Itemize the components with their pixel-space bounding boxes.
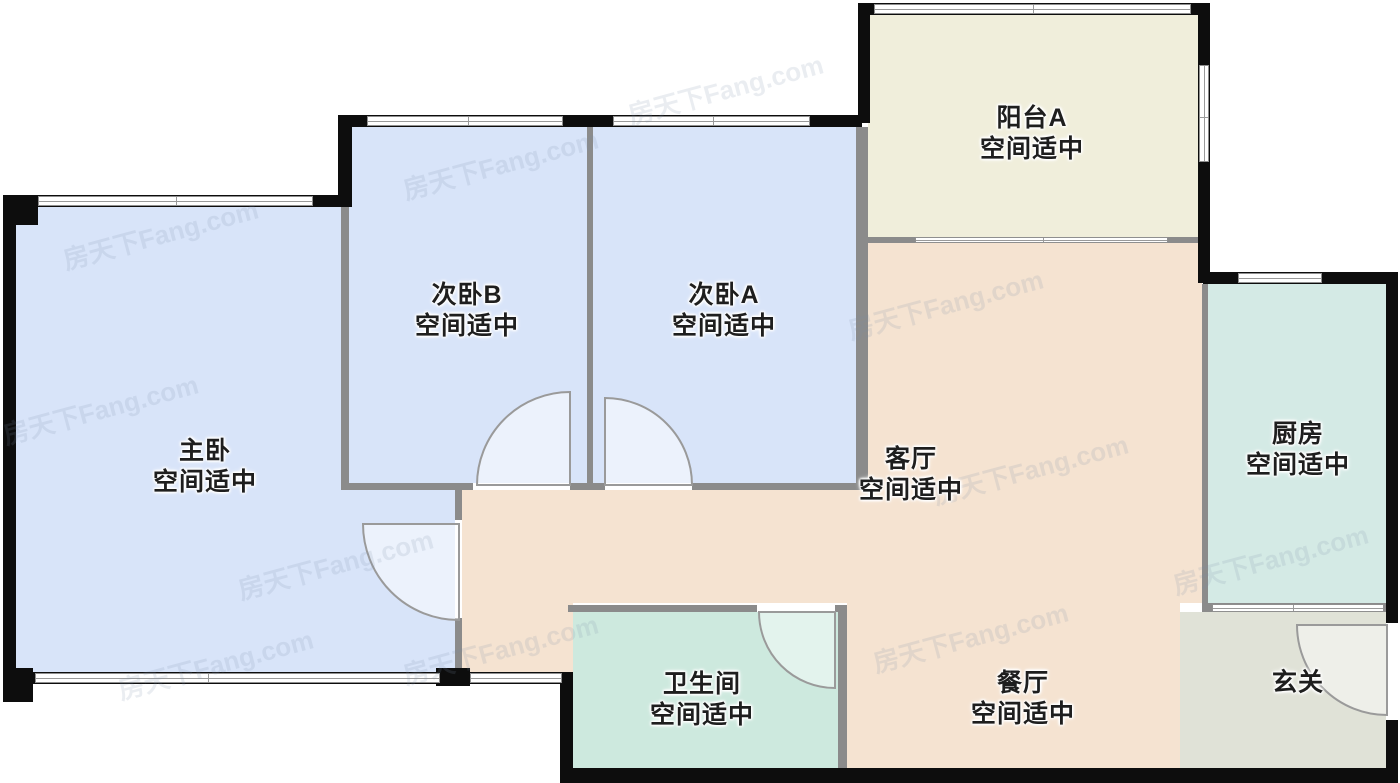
room-name: 厨房 [1246, 419, 1350, 450]
room-name: 卫生间 [650, 669, 754, 700]
room-name: 主卧 [153, 436, 257, 467]
label-kitchen: 厨房 空间适中 [1246, 419, 1350, 481]
label-balcony-a: 阳台A 空间适中 [980, 103, 1084, 165]
label-bedroom-a: 次卧A 空间适中 [672, 280, 776, 342]
label-master-bedroom: 主卧 空间适中 [153, 436, 257, 498]
room-name: 阳台A [980, 103, 1084, 134]
room-status: 空间适中 [859, 475, 963, 506]
room-status: 空间适中 [971, 699, 1075, 730]
room-status: 空间适中 [153, 467, 257, 498]
label-bedroom-b: 次卧B 空间适中 [415, 280, 519, 342]
room-status: 空间适中 [980, 134, 1084, 165]
room-name: 玄关 [1272, 668, 1324, 699]
label-living-room: 客厅 空间适中 [859, 444, 963, 506]
room-name: 客厅 [859, 444, 963, 475]
label-bathroom: 卫生间 空间适中 [650, 669, 754, 731]
room-name: 次卧B [415, 280, 519, 311]
door-arc-master-bedroom [363, 524, 459, 620]
room-status: 空间适中 [650, 700, 754, 731]
room-status: 空间适中 [415, 311, 519, 342]
room-status: 空间适中 [1246, 450, 1350, 481]
room-status: 空间适中 [672, 311, 776, 342]
door-swings-layer [0, 0, 1400, 783]
label-foyer: 玄关 [1272, 668, 1324, 699]
door-arc-bathroom [759, 612, 835, 688]
floorplan-canvas: 主卧 空间适中 次卧B 空间适中 次卧A 空间适中 阳台A 空间适中 客厅 空间… [0, 0, 1400, 783]
door-arc-bedroomB [477, 392, 570, 485]
door-arc-bedroomA [605, 398, 692, 485]
label-dining-room: 餐厅 空间适中 [971, 668, 1075, 730]
room-name: 次卧A [672, 280, 776, 311]
room-name: 餐厅 [971, 668, 1075, 699]
